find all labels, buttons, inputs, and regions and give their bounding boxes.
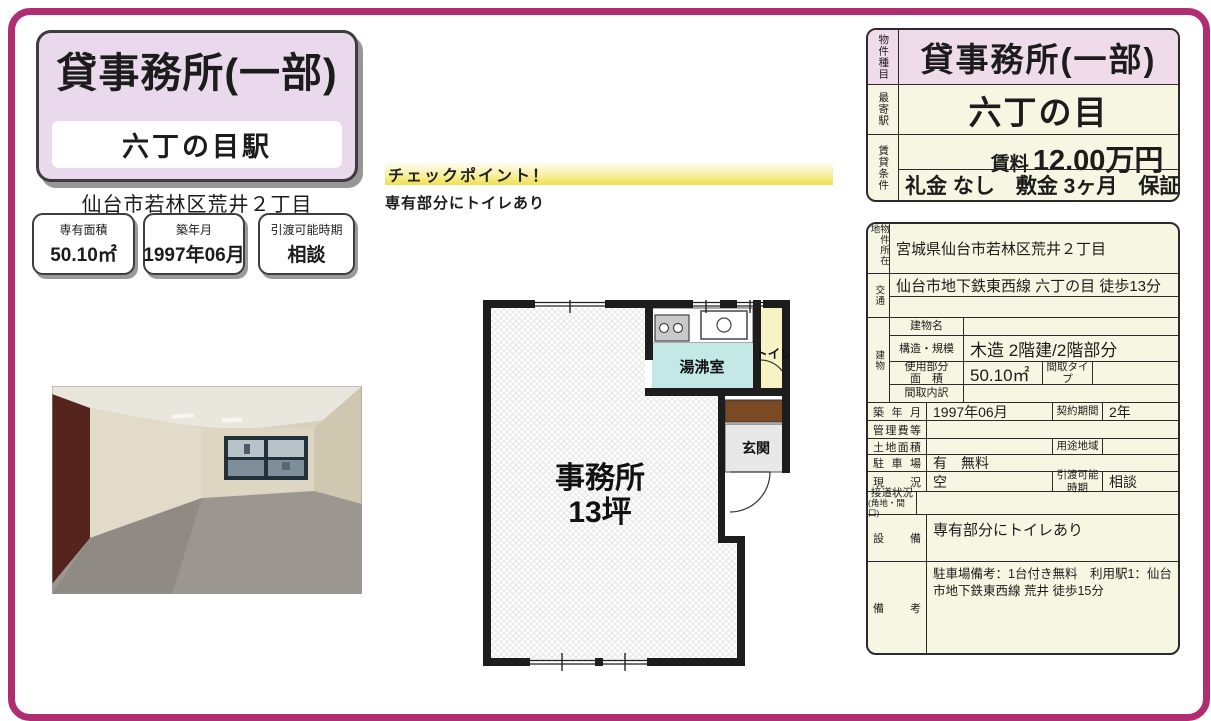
equipment-value: 専有部分にトイレあり	[926, 515, 1178, 561]
entrance-room	[725, 400, 790, 512]
row-remarks: 備 考 駐車場備考：1台付き無料 利用駅1：仙台市地下鉄東西線 荒井 徒歩15分	[868, 561, 1178, 653]
row-nearest-station: 最寄駅 六丁の目	[868, 84, 1178, 134]
remarks-value: 駐車場備考：1台付き無料 利用駅1：仙台市地下鉄東西線 荒井 徒歩15分	[926, 562, 1178, 653]
row-current-status: 現 況 空 引渡可能 時期 相談	[868, 471, 1178, 491]
parking-value: 有 無料	[926, 455, 1178, 471]
row-built: 築年月 1997年06月 契約期間 2年	[868, 402, 1178, 420]
entrance-door-arc	[730, 472, 770, 512]
layout-type-value	[1092, 362, 1178, 384]
checkpoint-text: 専有部分にトイレあり	[385, 192, 545, 213]
toilet-label: トイレ	[755, 347, 790, 361]
layout-type-label: 間取タイプ	[1042, 362, 1092, 384]
handover-value: 相談	[1102, 472, 1178, 491]
access-label: 交通	[868, 274, 889, 317]
kitchen-label: 湯沸室	[679, 358, 724, 376]
building-label: 建物	[868, 318, 889, 402]
contract-label: 契約期間	[1052, 403, 1102, 420]
remarks-label: 備 考	[868, 600, 926, 616]
management-fee-value	[926, 421, 1178, 438]
info-box-built-value: 1997年06月	[143, 240, 244, 267]
row-parking: 駐車場 有 無料	[868, 454, 1178, 471]
title-card: 貸事務所(一部) 六丁の目駅	[36, 30, 358, 182]
info-box-area: 専有面積 50.10㎡	[32, 213, 135, 275]
office-label: 事務所	[555, 461, 645, 495]
row-location: 物件所在地 宮城県仙台市若林区荒井２丁目	[868, 224, 1178, 273]
structure-label: 構造・規模	[890, 336, 963, 361]
summary-table: 物件種目 貸事務所(一部) 最寄駅 六丁の目 賃貸条件 賃料 12.00万円 礼…	[866, 28, 1180, 202]
location-value: 宮城県仙台市若林区荒井２丁目	[889, 224, 1178, 273]
location-label: 物件所在地	[868, 224, 889, 273]
structure-value: 木造 2階建/2階部分	[963, 336, 1178, 361]
built-label: 築年月	[868, 404, 926, 420]
property-photo-image	[52, 386, 362, 594]
management-fee-label: 管理費等	[868, 422, 926, 438]
parking-label: 駐車場	[868, 455, 926, 471]
layout-detail-label: 間取内訳	[890, 385, 963, 402]
access-value: 仙台市地下鉄東西線 六丁の目 徒歩13分	[890, 274, 1178, 296]
office-size-label: 13坪	[568, 496, 631, 529]
entrance-label: 玄関	[742, 440, 770, 456]
current-status-value: 空	[926, 472, 1052, 491]
zoning-label: 用途地域	[1052, 439, 1102, 454]
stove-burner-icon	[660, 324, 669, 333]
info-box-area-label: 専有面積	[59, 221, 107, 238]
row-fees: 礼金 なし 敷金 3ヶ月 保証金 なし	[899, 169, 1180, 200]
info-box-handover-value: 相談	[287, 240, 325, 267]
page-title: 貸事務所(一部)	[56, 39, 337, 99]
row-building: 建物 建物名 構造・規模 木造 2階建/2階部分 使用部分 面 積 50.10㎡…	[868, 317, 1178, 402]
land-area-label: 土地面積	[868, 439, 926, 455]
row-rent: 賃料 12.00万円	[899, 135, 1180, 169]
access-value-2	[890, 297, 1178, 317]
layout-detail-value	[963, 385, 1178, 402]
building-name-label: 建物名	[890, 318, 963, 335]
row-land-area: 土地面積 用途地域	[868, 438, 1178, 454]
row-management-fee: 管理費等	[868, 420, 1178, 438]
property-photo	[52, 386, 362, 594]
row-structure: 構造・規模 木造 2階建/2階部分	[890, 335, 1178, 361]
floor-plan: 湯沸室 トイレ 玄関 事務所 13坪	[483, 300, 790, 672]
checkpoint-bar: チェックポイント！	[385, 163, 833, 185]
row-property-type: 物件種目 貸事務所(一部)	[868, 30, 1178, 84]
row-used-area: 使用部分 面 積 50.10㎡ 間取タイプ	[890, 361, 1178, 384]
used-area-label-1: 使用部分	[905, 361, 949, 374]
handover-label-1: 引渡可能	[1057, 469, 1099, 481]
row-layout-detail: 間取内訳	[890, 384, 1178, 402]
row-rental-terms: 賃貸条件 賃料 12.00万円 礼金 なし 敷金 3ヶ月 保証金 なし	[868, 134, 1178, 200]
contract-value: 2年	[1102, 403, 1178, 420]
used-area-value: 50.10㎡	[963, 362, 1042, 384]
rental-terms-label: 賃貸条件	[868, 135, 898, 200]
row-access: 交通 仙台市地下鉄東西線 六丁の目 徒歩13分	[868, 273, 1178, 317]
equipment-label: 設 備	[868, 530, 926, 546]
land-area-value	[926, 439, 1052, 454]
property-type-value: 貸事務所(一部)	[898, 30, 1178, 84]
stove-burner-icon	[674, 324, 683, 333]
floor-plan-drawing: 湯沸室 トイレ 玄関 事務所 13坪	[483, 300, 790, 672]
row-equipment: 設 備 専有部分にトイレあり	[868, 514, 1178, 561]
road-access-value	[916, 492, 1178, 514]
info-box-handover-label: 引渡可能時期	[270, 221, 342, 238]
detail-table: 物件所在地 宮城県仙台市若林区荒井２丁目 交通 仙台市地下鉄東西線 六丁の目 徒…	[866, 222, 1180, 655]
station-badge: 六丁の目駅	[52, 121, 342, 168]
nearest-station-label: 最寄駅	[868, 85, 898, 134]
info-box-handover: 引渡可能時期 相談	[258, 213, 355, 275]
row-building-name: 建物名	[890, 318, 1178, 335]
built-value: 1997年06月	[926, 403, 1052, 420]
building-name-value	[963, 318, 1178, 335]
info-box-area-value: 50.10㎡	[50, 240, 117, 267]
zoning-value	[1102, 439, 1178, 454]
fees-value: 礼金 なし 敷金 3ヶ月 保証金 なし	[899, 170, 1180, 200]
kitchen-room	[652, 308, 753, 388]
info-box-built: 築年月 1997年06月	[143, 213, 245, 275]
road-access-label-2: (角地・間口)	[868, 499, 916, 518]
property-type-label: 物件種目	[868, 30, 898, 84]
row-road-access: 接道状況 (角地・間口)	[868, 491, 1178, 514]
checkpoint-title: チェックポイント！	[385, 162, 550, 186]
nearest-station-value: 六丁の目	[898, 85, 1178, 134]
info-box-built-label: 築年月	[176, 221, 212, 238]
